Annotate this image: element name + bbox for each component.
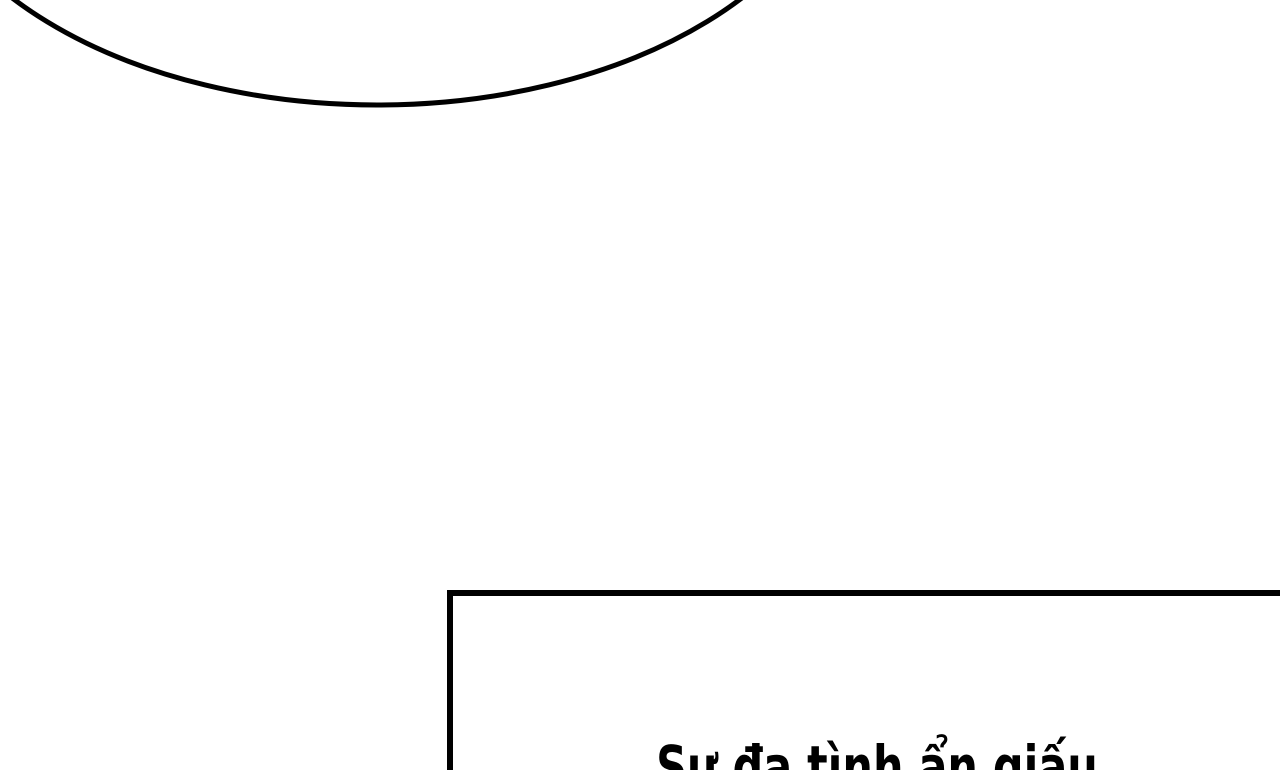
caption-text: Sự đa tình ẩn giấu [559, 738, 1195, 770]
comic-page: Sự đa tình ẩn giấu [0, 0, 1280, 770]
speech-bubble-ellipse [0, 0, 844, 105]
